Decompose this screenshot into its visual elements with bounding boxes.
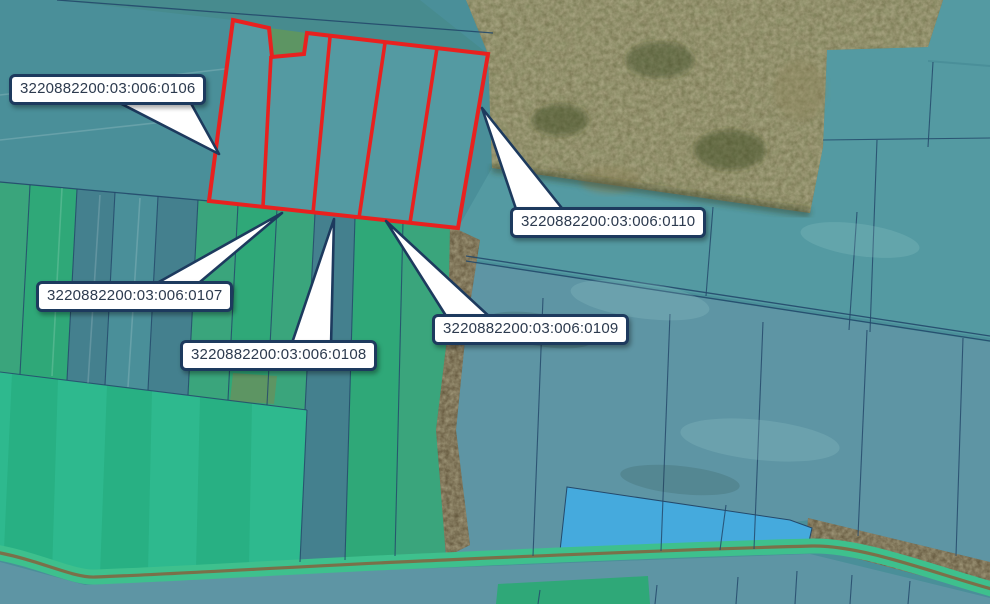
field-parcel-olive[interactable] — [230, 373, 277, 404]
field-parcel[interactable] — [4, 373, 58, 574]
map-viewport[interactable]: 3220882200:03:006:0106 3220882200:03:006… — [0, 0, 990, 604]
tree-cluster — [626, 42, 694, 78]
tree-cluster — [694, 130, 766, 170]
parcel-callout-0108: 3220882200:03:006:0108 — [180, 340, 377, 371]
field-parcel[interactable] — [196, 397, 252, 569]
parcel-callout-0106: 3220882200:03:006:0106 — [9, 74, 206, 105]
parcel-callout-0109: 3220882200:03:006:0109 — [432, 314, 629, 345]
parcel-callout-0110: 3220882200:03:006:0110 — [510, 207, 706, 238]
selected-parcel-group[interactable] — [209, 20, 488, 228]
selected-parcel-fill[interactable] — [209, 20, 488, 228]
parcel-callout-0107: 3220882200:03:006:0107 — [36, 281, 233, 312]
tree-cluster — [532, 104, 588, 136]
field-parcel[interactable] — [100, 385, 152, 575]
clearing-patch — [774, 60, 826, 120]
bright-green-parcels[interactable] — [0, 372, 307, 576]
